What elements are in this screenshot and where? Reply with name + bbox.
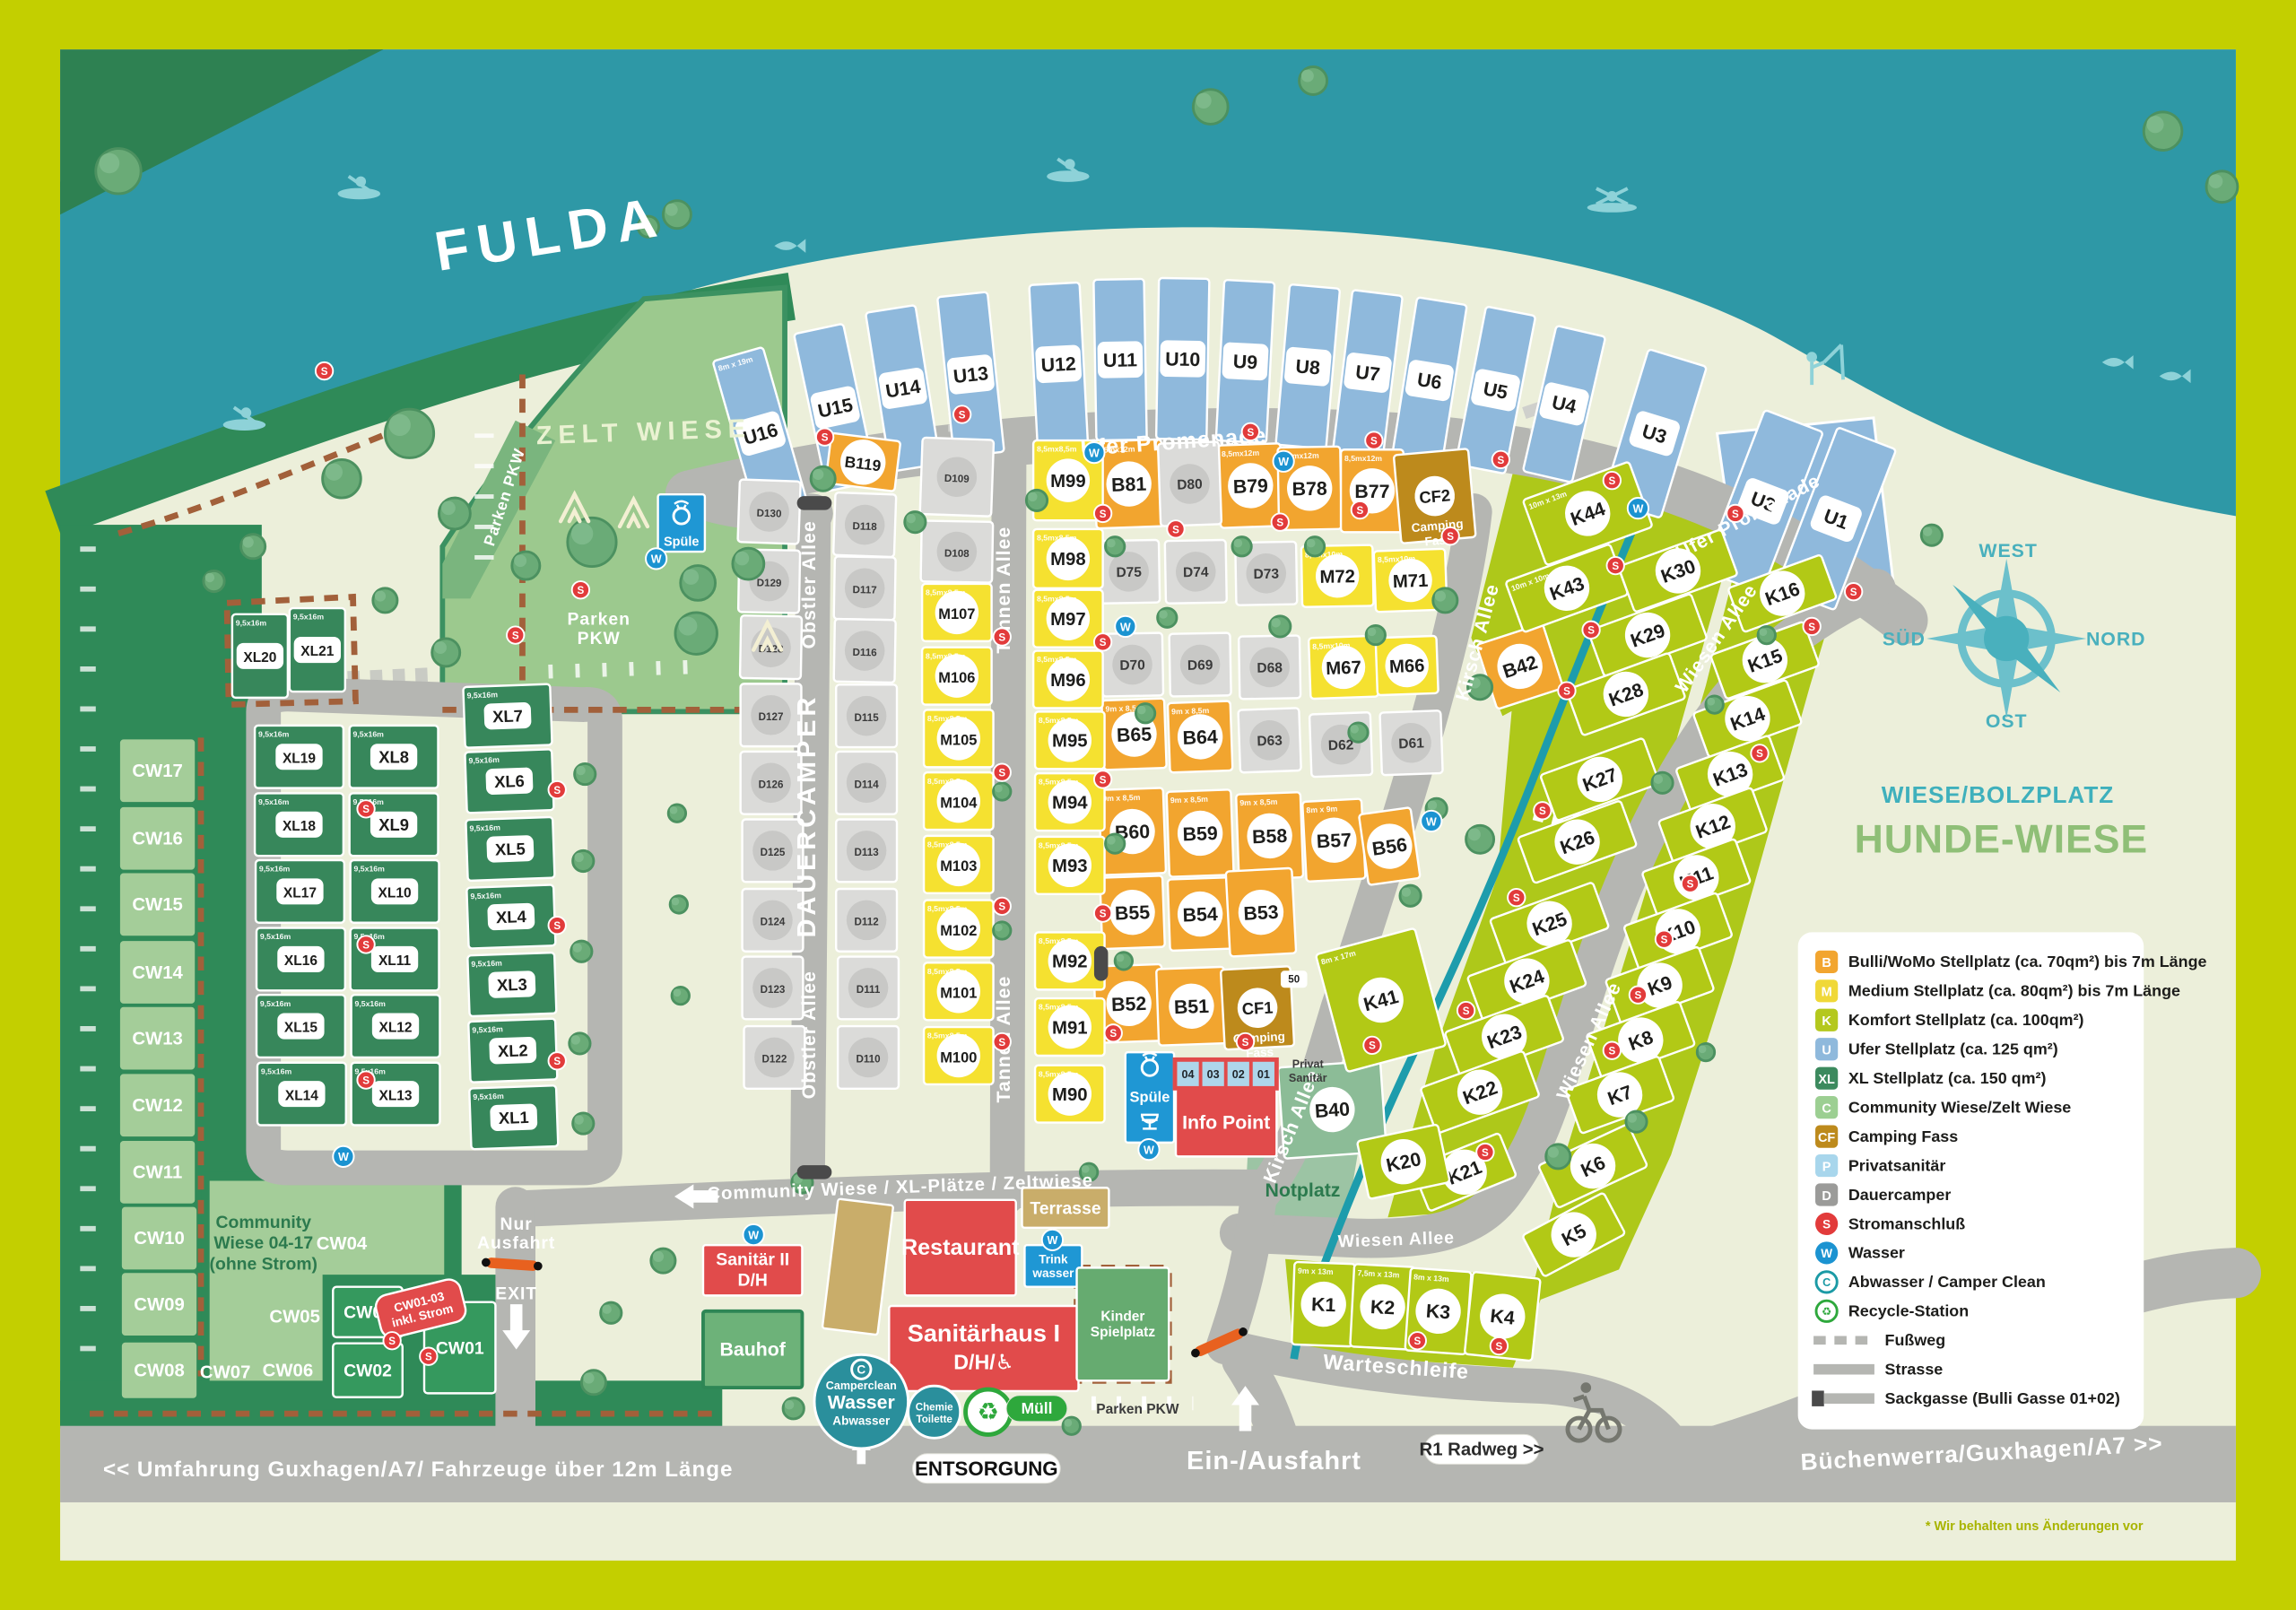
tree-icon: [905, 512, 926, 533]
wasser-marker: W: [1042, 1230, 1063, 1250]
label-community: Community: [216, 1213, 312, 1232]
tree-icon: [1706, 696, 1723, 713]
svg-text:B77: B77: [1354, 481, 1389, 502]
label-ein-ausfahrt: Ein-/Ausfahrt: [1187, 1447, 1361, 1475]
svg-text:D110: D110: [856, 1054, 880, 1066]
svg-text:8,5mx8,5m: 8,5mx8,5m: [1039, 1003, 1079, 1012]
legend-item-ufer: UUfer Stellplatz (ca. 125 qm²): [1815, 1038, 2058, 1060]
svg-text:U8: U8: [1295, 355, 1321, 379]
svg-text:Privatsanitär: Privatsanitär: [1848, 1156, 1946, 1174]
wasser-marker: W: [1274, 451, 1294, 472]
svg-text:M95: M95: [1052, 732, 1088, 752]
plot-XL19: XL199,5x16m: [255, 726, 344, 788]
svg-text:Abwasser / Camper Clean: Abwasser / Camper Clean: [1848, 1273, 2046, 1291]
label-exit: EXIT: [495, 1284, 537, 1303]
svg-text:D111: D111: [857, 984, 881, 996]
plot-XL2: XL29,5x16m: [468, 1019, 557, 1083]
tree-icon: [1063, 1417, 1080, 1434]
plot-CW06: CW06: [263, 1361, 313, 1380]
tree-icon: [1349, 723, 1368, 742]
svg-text:XL5: XL5: [495, 839, 526, 858]
svg-text:XL11: XL11: [378, 953, 412, 969]
svg-text:M66: M66: [1389, 657, 1425, 677]
tree-icon: [1026, 490, 1047, 510]
svg-text:W: W: [338, 1151, 349, 1163]
svg-text:S: S: [1172, 524, 1179, 535]
plot-D108: D108: [921, 520, 994, 582]
plot-U11: U11: [1093, 279, 1146, 440]
plot-D110: D110: [838, 1026, 899, 1089]
svg-text:CW17: CW17: [132, 761, 182, 781]
strom-marker: S: [1272, 513, 1289, 530]
svg-text:D61: D61: [1398, 735, 1424, 752]
plot-CW12: CW12: [120, 1074, 195, 1136]
plot-U9: U9: [1216, 280, 1274, 443]
tree-icon: [204, 570, 224, 591]
label-pkw: PKW: [578, 629, 621, 648]
tree-icon: [581, 1371, 605, 1395]
svg-text:P: P: [1822, 1160, 1831, 1174]
svg-text:M106: M106: [938, 670, 975, 686]
svg-text:S: S: [959, 409, 966, 421]
svg-text:Chemie: Chemie: [916, 1401, 953, 1413]
plot-CW13: CW13: [120, 1007, 195, 1070]
svg-text:CW09: CW09: [134, 1295, 184, 1315]
svg-text:D123: D123: [761, 984, 786, 996]
tree-icon: [573, 850, 594, 871]
tree-icon: [1626, 1111, 1647, 1132]
svg-text:M101: M101: [940, 986, 977, 1002]
svg-text:D113: D113: [855, 847, 880, 858]
svg-text:U11: U11: [1103, 349, 1137, 371]
plot-D69: D69: [1170, 633, 1231, 697]
svg-text:B78: B78: [1291, 478, 1327, 500]
strom-marker: S: [357, 1071, 374, 1088]
svg-text:K: K: [1822, 1014, 1831, 1029]
plot-D116: D116: [834, 619, 896, 683]
strom-marker: S: [1607, 557, 1624, 574]
facility-chemie-toilette: ChemieToilette: [909, 1386, 961, 1438]
svg-text:CW05: CW05: [269, 1307, 319, 1327]
privatsanitaer-boxes: 04030201: [1173, 1057, 1279, 1091]
svg-text:♻: ♻: [978, 1397, 999, 1425]
svg-text:S: S: [822, 432, 829, 444]
svg-text:D74: D74: [1183, 565, 1209, 581]
plot-B51: B51: [1156, 967, 1226, 1046]
svg-text:Spielplatz: Spielplatz: [1091, 1325, 1156, 1340]
svg-text:M96: M96: [1050, 671, 1086, 691]
label-wiese-bolzplatz: WIESE/BOLZPLATZ: [1882, 781, 2114, 808]
wasser-marker: W: [646, 548, 666, 569]
svg-text:8,5mx8,5m: 8,5mx8,5m: [1039, 840, 1079, 849]
svg-text:W: W: [1144, 1144, 1154, 1156]
sackgasse-cap: [797, 496, 832, 510]
plot-M66: M66: [1376, 636, 1439, 695]
strom-marker: S: [549, 1052, 566, 1069]
svg-text:9m x 13m: 9m x 13m: [1298, 1266, 1334, 1276]
tree-icon: [1232, 537, 1251, 556]
svg-text:M91: M91: [1052, 1018, 1088, 1038]
tree-icon: [432, 639, 460, 666]
tree-icon: [1270, 616, 1291, 637]
svg-text:8,5mx8,5m: 8,5mx8,5m: [1039, 936, 1079, 945]
svg-text:S: S: [998, 631, 1005, 643]
svg-text:M99: M99: [1050, 472, 1086, 492]
plot-D112: D112: [836, 889, 897, 952]
plot-D123: D123: [743, 957, 804, 1020]
plot-B65: B659m x 8,5m: [1101, 699, 1166, 770]
svg-text:8,5mx8,5m: 8,5mx8,5m: [1039, 1069, 1079, 1078]
svg-text:XL4: XL4: [496, 907, 527, 927]
svg-text:S: S: [1539, 805, 1546, 817]
tree-icon: [672, 987, 689, 1004]
plot-B59: B599m x 8,5m: [1167, 789, 1234, 876]
tree-icon: [1106, 537, 1125, 556]
svg-text:D114: D114: [855, 779, 880, 790]
strom-marker: S: [1476, 1144, 1493, 1161]
tree-icon: [571, 941, 592, 962]
plot-CW10: CW10: [122, 1207, 196, 1270]
svg-text:D124: D124: [761, 916, 786, 927]
svg-text:9,5x16m: 9,5x16m: [293, 613, 325, 622]
plot-M101: M1018,5mx8,5m: [924, 962, 994, 1020]
svg-text:Müll: Müll: [1022, 1399, 1053, 1417]
svg-text:U6: U6: [1415, 369, 1443, 394]
svg-text:C: C: [857, 1363, 865, 1377]
strom-marker: S: [1534, 802, 1551, 819]
label--wir-behalten-uns-nderungen-: * Wir behalten uns Änderungen vor: [1926, 1519, 2144, 1534]
svg-text:S: S: [998, 1037, 1005, 1049]
facility-info-point: Info Point: [1176, 1089, 1276, 1157]
svg-text:Sackgasse (Bulli Gasse 01+02): Sackgasse (Bulli Gasse 01+02): [1885, 1389, 2120, 1407]
strom-marker: S: [1094, 904, 1111, 921]
svg-text:D112: D112: [855, 916, 879, 927]
tree-icon: [1433, 588, 1457, 613]
strom-marker: S: [1803, 618, 1820, 635]
legend-item-wasser: WWasser: [1815, 1241, 1905, 1264]
svg-text:B57: B57: [1316, 829, 1352, 852]
svg-text:9m x 8,5m: 9m x 8,5m: [1171, 706, 1210, 716]
svg-text:Trink: Trink: [1039, 1253, 1068, 1266]
svg-text:S: S: [998, 901, 1005, 913]
tree-icon: [994, 783, 1011, 800]
plot-CW05: CW05: [269, 1307, 319, 1327]
tree-icon: [675, 613, 717, 655]
svg-text:XL16: XL16: [284, 953, 317, 969]
strom-marker: S: [1094, 633, 1111, 650]
tree-icon: [1921, 525, 1942, 545]
svg-text:D: D: [1822, 1189, 1831, 1204]
svg-text:Wasser: Wasser: [828, 1391, 895, 1413]
svg-text:S: S: [1563, 685, 1570, 697]
svg-text:S: S: [998, 768, 1005, 779]
plot-XL21: XL219,5x16m: [290, 608, 345, 692]
svg-text:M92: M92: [1052, 953, 1088, 972]
svg-text:U7: U7: [1354, 361, 1381, 386]
svg-text:W: W: [748, 1229, 759, 1241]
tree-icon: [1652, 772, 1673, 793]
svg-text:B55: B55: [1115, 901, 1151, 924]
svg-text:Abwasser: Abwasser: [832, 1414, 891, 1428]
svg-text:9,5x16m: 9,5x16m: [468, 755, 500, 765]
svg-text:S: S: [1822, 1217, 1831, 1231]
svg-text:R1 Radweg >>: R1 Radweg >>: [1420, 1440, 1544, 1460]
svg-text:8,5mx10m: 8,5mx10m: [1312, 640, 1351, 650]
svg-text:C: C: [1822, 1101, 1831, 1116]
plot-D118: D118: [833, 492, 896, 557]
label--umfahrung-guxhagen-a7-fahrz: << Umfahrung Guxhagen/A7/ Fahrzeuge über…: [103, 1458, 734, 1482]
strom-marker: S: [383, 1332, 400, 1349]
svg-text:XL13: XL13: [378, 1088, 412, 1103]
svg-text:S: S: [425, 1352, 432, 1363]
strom-marker: S: [1656, 930, 1673, 947]
svg-text:CW10: CW10: [134, 1229, 184, 1249]
svg-text:XL1: XL1: [499, 1108, 529, 1127]
svg-text:9,5x16m: 9,5x16m: [354, 865, 386, 874]
svg-text:CF: CF: [1818, 1131, 1835, 1145]
svg-text:9,5x16m: 9,5x16m: [466, 690, 498, 700]
svg-text:U: U: [1822, 1044, 1831, 1058]
svg-text:Bauhof: Bauhof: [720, 1338, 787, 1360]
label-nord: NORD: [2086, 629, 2146, 650]
plot-XL15: XL159,5x16m: [257, 995, 345, 1057]
svg-text:8,5mx8,5m: 8,5mx8,5m: [927, 840, 968, 849]
svg-text:S: S: [1100, 908, 1107, 919]
svg-text:S: S: [1276, 518, 1283, 529]
label-privat: Privat: [1292, 1058, 1325, 1071]
plot-XL1: XL19,5x16m: [469, 1085, 558, 1149]
svg-text:Dauercamper: Dauercamper: [1848, 1186, 1951, 1204]
svg-text:Stromanschluß: Stromanschluß: [1848, 1214, 1965, 1232]
svg-text:S: S: [362, 939, 370, 951]
tree-icon: [1466, 825, 1494, 853]
tree-icon: [670, 896, 687, 913]
plot-M91: M918,5mx8,5m: [1035, 998, 1105, 1056]
svg-text:B52: B52: [1111, 993, 1147, 1015]
svg-text:B: B: [1822, 956, 1831, 970]
plot-D74: D74: [1165, 540, 1227, 604]
plot-M90: M908,5mx8,5m: [1035, 1066, 1105, 1123]
svg-text:Info Point: Info Point: [1182, 1111, 1270, 1133]
label-west: WEST: [1979, 540, 2037, 561]
tree-icon: [241, 535, 265, 559]
plot-M67: M678,5mx10m: [1309, 636, 1378, 699]
svg-text:XL18: XL18: [283, 819, 316, 834]
facility-camperclean: CampercleanWasserAbwasserC: [814, 1354, 909, 1449]
plot-B60: B609m x 8,5m: [1099, 788, 1166, 875]
svg-text:W: W: [1426, 815, 1437, 828]
legend-item-camping: CFCamping Fass: [1815, 1126, 1958, 1148]
svg-text:S: S: [1447, 531, 1454, 543]
svg-text:D127: D127: [759, 711, 784, 723]
svg-text:K4: K4: [1489, 1305, 1516, 1329]
svg-text:8,5mx8,5m: 8,5mx8,5m: [926, 588, 966, 597]
plot-U10: U10: [1156, 278, 1209, 439]
tree-icon: [573, 1113, 594, 1134]
facility-entsorgung: ENTSORGUNG: [912, 1454, 1060, 1484]
svg-text:W: W: [1089, 447, 1100, 459]
svg-text:S: S: [321, 366, 328, 378]
strom-marker: S: [953, 405, 970, 422]
svg-text:8,5mx8,5m: 8,5mx8,5m: [927, 1031, 968, 1040]
tree-icon: [651, 1249, 675, 1273]
svg-text:S: S: [362, 804, 370, 815]
svg-text:B65: B65: [1117, 724, 1152, 746]
svg-text:8,5mx8,5m: 8,5mx8,5m: [927, 777, 968, 786]
svg-text:CW04: CW04: [317, 1234, 368, 1254]
svg-text:CF1: CF1: [1241, 997, 1274, 1018]
strom-marker: S: [1630, 986, 1647, 1003]
tree-icon: [1135, 704, 1154, 723]
svg-text:S: S: [1608, 475, 1615, 487]
map-poster: U168m x 19mU15U14U13U12U11U10U9U8U7U6U5U…: [0, 0, 2296, 1610]
plot-XL20: XL209,5x16m: [232, 614, 288, 698]
svg-text:XL Stellplatz (ca. 150 qm²): XL Stellplatz (ca. 150 qm²): [1848, 1069, 2047, 1087]
tree-icon: [994, 922, 1011, 939]
svg-text:S: S: [553, 1056, 561, 1067]
facility-terrasse: Terrasse: [1022, 1188, 1109, 1228]
plot-D61: D61: [1379, 710, 1442, 775]
svg-text:M71: M71: [1392, 571, 1428, 592]
strom-marker: S: [549, 781, 566, 798]
svg-text:S: S: [1369, 1040, 1376, 1052]
facility-sanitaer-2: Sanitär IID/H: [703, 1245, 802, 1295]
svg-text:D73: D73: [1253, 567, 1279, 583]
plot-CW02: CW02: [333, 1344, 403, 1397]
tree-icon: [439, 498, 470, 529]
svg-text:D115: D115: [855, 712, 880, 724]
svg-text:W: W: [1821, 1247, 1832, 1260]
svg-text:XL21: XL21: [300, 644, 334, 659]
facility-bauhof: Bauhof: [703, 1311, 802, 1388]
svg-text:D122: D122: [762, 1054, 787, 1066]
strom-marker: S: [1508, 889, 1525, 906]
svg-text:9,5x16m: 9,5x16m: [470, 891, 501, 901]
svg-text:W: W: [651, 553, 662, 566]
svg-text:CW08: CW08: [134, 1361, 184, 1380]
svg-text:S: S: [1587, 625, 1595, 637]
plot-M96: M968,5mx8,5m: [1033, 651, 1103, 709]
tree-icon: [96, 149, 141, 194]
svg-text:D117: D117: [852, 584, 876, 596]
svg-text:S: S: [1661, 935, 1668, 946]
svg-text:Bulli/WoMo Stellplatz (ca. 70q: Bulli/WoMo Stellplatz (ca. 70qm²) bis 7m…: [1848, 953, 2207, 970]
svg-text:U9: U9: [1232, 351, 1258, 373]
svg-text:CF2: CF2: [1418, 485, 1450, 507]
wasser-marker: W: [1115, 616, 1135, 637]
tree-icon: [783, 1398, 804, 1419]
svg-text:03: 03: [1207, 1068, 1220, 1081]
tree-icon: [1697, 1043, 1714, 1060]
strom-marker: S: [1457, 1002, 1474, 1019]
plot-M107: M1078,5mx8,5m: [922, 584, 992, 641]
facility-restaurant: Restaurant: [901, 1200, 1020, 1296]
strom-marker: S: [1237, 1033, 1254, 1050]
plot-CW09: CW09: [122, 1273, 196, 1336]
strom-marker: S: [357, 800, 374, 817]
svg-text:CW16: CW16: [132, 830, 182, 849]
svg-text:S: S: [1497, 455, 1504, 466]
svg-text:9m x 8,5m: 9m x 8,5m: [1170, 795, 1209, 805]
svg-text:9,5x16m: 9,5x16m: [473, 1092, 504, 1101]
svg-text:Ufer Stellplatz (ca. 125 qm²): Ufer Stellplatz (ca. 125 qm²): [1848, 1040, 2058, 1058]
label-parken-pkw: Parken PKW: [1096, 1402, 1179, 1417]
plot-XL12: XL129,5x16m: [352, 995, 440, 1057]
plot-U12: U12: [1029, 283, 1087, 446]
svg-text:CW07: CW07: [200, 1362, 250, 1382]
svg-text:Komfort Stellplatz (ca. 100qm²: Komfort Stellplatz (ca. 100qm²): [1848, 1011, 2084, 1029]
label-nur: Nur: [500, 1214, 533, 1234]
svg-text:S: S: [1756, 748, 1763, 760]
svg-text:8,5mx8,5m: 8,5mx8,5m: [927, 967, 968, 976]
svg-text:8,5mx8,5m: 8,5mx8,5m: [927, 904, 968, 913]
plot-D114: D114: [836, 752, 897, 814]
plot-D109: D109: [920, 438, 994, 517]
plot-M95: M958,5mx8,5m: [1035, 711, 1105, 769]
svg-text:S: S: [553, 920, 561, 932]
svg-text:XL: XL: [1818, 1073, 1835, 1087]
plot-K1: K19m x 13m: [1291, 1262, 1355, 1346]
plot-XL18: XL189,5x16m: [255, 793, 344, 856]
svg-text:9,5x16m: 9,5x16m: [258, 729, 290, 738]
svg-text:8,5mx8,5m: 8,5mx8,5m: [926, 651, 966, 660]
tree-icon: [1106, 834, 1125, 853]
label-wiesen-allee: Wiesen Allee: [1337, 1228, 1455, 1252]
tree-icon: [601, 1302, 622, 1323]
svg-text:S: S: [1100, 509, 1107, 520]
svg-text:Wasser: Wasser: [1848, 1244, 1905, 1262]
svg-text:M90: M90: [1052, 1085, 1088, 1105]
plot-M100: M1008,5mx8,5m: [924, 1027, 994, 1084]
svg-text:CW01: CW01: [436, 1338, 484, 1358]
svg-text:S: S: [553, 785, 561, 796]
svg-text:9,5x16m: 9,5x16m: [261, 1066, 292, 1075]
svg-text:XL20: XL20: [243, 650, 276, 666]
svg-text:S: S: [1100, 637, 1107, 648]
tree-icon: [1400, 885, 1421, 906]
facility-trinkwasser: Trinkwasser: [1024, 1245, 1082, 1287]
tree-icon: [2206, 171, 2238, 203]
svg-text:D118: D118: [852, 520, 877, 533]
svg-text:B40: B40: [1314, 1098, 1351, 1122]
svg-text:D130: D130: [756, 508, 781, 520]
facility-muell: Müll: [1006, 1396, 1067, 1422]
plot-M93: M938,5mx8,5m: [1035, 837, 1105, 894]
svg-text:9,5x16m: 9,5x16m: [472, 1024, 503, 1034]
svg-text:S: S: [1100, 774, 1107, 786]
plot-XL10: XL109,5x16m: [351, 860, 439, 923]
svg-text:D125: D125: [761, 847, 786, 858]
strom-marker: S: [1352, 501, 1369, 518]
svg-text:8,5mx8,5m: 8,5mx8,5m: [1037, 655, 1077, 664]
svg-text:D70: D70: [1119, 657, 1145, 673]
svg-text:S: S: [1687, 879, 1694, 891]
plot-CW14: CW14: [120, 941, 195, 1004]
svg-text:D108: D108: [944, 547, 970, 559]
svg-text:S: S: [388, 1336, 396, 1347]
svg-text:D/H: D/H: [738, 1271, 768, 1291]
svg-text:XL19: XL19: [283, 751, 316, 766]
svg-text:CW06: CW06: [263, 1361, 313, 1380]
svg-text:M72: M72: [1319, 567, 1355, 587]
tree-icon: [570, 1033, 590, 1054]
svg-text:S: S: [1612, 561, 1619, 572]
svg-text:S: S: [1513, 892, 1520, 904]
tree-icon: [2144, 112, 2182, 151]
svg-text:XL12: XL12: [378, 1021, 412, 1036]
svg-text:M103: M103: [940, 858, 977, 875]
svg-text:ENTSORGUNG: ENTSORGUNG: [915, 1458, 1058, 1480]
